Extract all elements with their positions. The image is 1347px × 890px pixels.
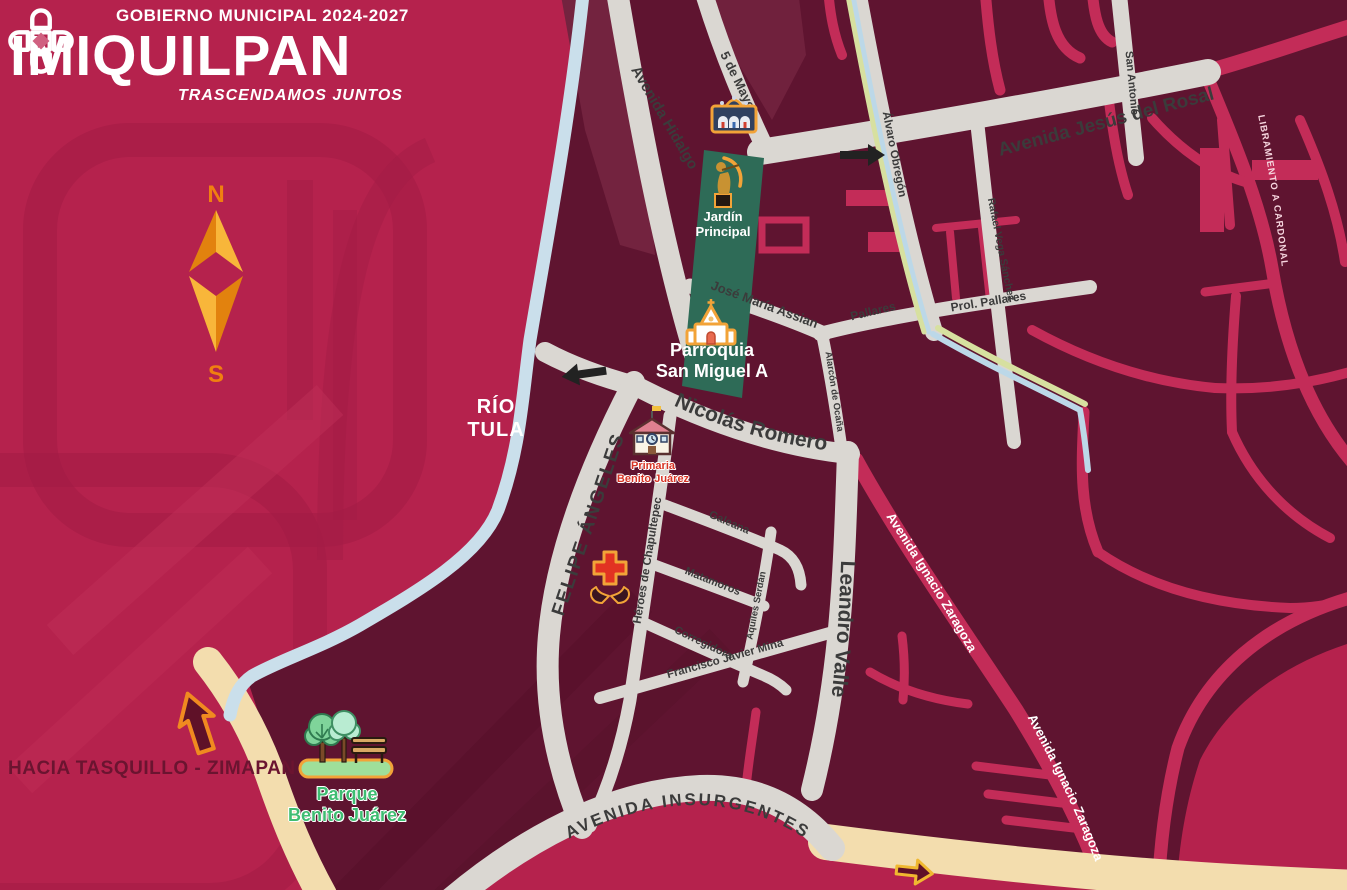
logo-tagline: TRASCENDAMOS JUNTOS (10, 87, 409, 105)
logo-wordmark: I MIQUILPAN (10, 28, 409, 85)
logo-flower-icon (6, 6, 76, 76)
parroquia-label: Parroquia San Miguel A (656, 340, 768, 381)
primaria-label: Primaria Benito Juárez (617, 460, 689, 485)
jardin-principal-label: Jardín Principal (696, 210, 751, 240)
parque-label: Parque Benito Juárez (288, 784, 406, 825)
compass-north-label: N (207, 181, 224, 208)
municipal-logo: GOBIERNO MUNICIPAL 2024-2027 I MIQUILPAN… (10, 6, 409, 105)
logo-government-line: GOBIERNO MUNICIPAL 2024-2027 (116, 6, 409, 26)
hacia-tasquillo-label: HACIA TASQUILLO - ZIMAPAN (8, 758, 296, 780)
map-canvas: Avenida Hidalgo 5 de Mayo Avenida Jesús … (0, 0, 1347, 890)
compass-south-label: S (208, 361, 224, 388)
map-art: Avenida Hidalgo 5 de Mayo Avenida Jesús … (0, 0, 1347, 890)
rio-tula-label: RÍO TULA (455, 396, 537, 442)
